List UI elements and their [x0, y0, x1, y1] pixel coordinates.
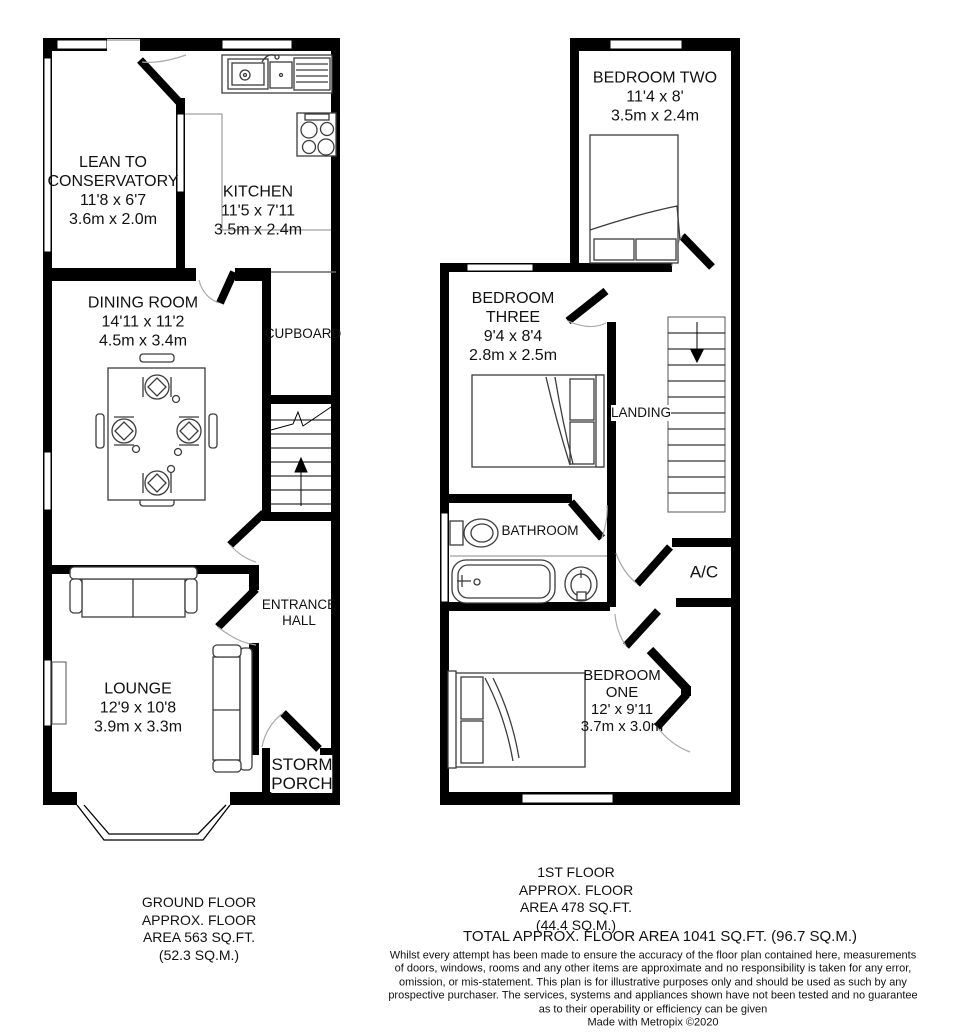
basin-icon: [565, 567, 597, 601]
disclaimer-text: Whilst every attempt has been made to en…: [373, 949, 933, 1016]
dining-table-icon: [96, 354, 217, 506]
ground-floor-caption: GROUND FLOOR APPROX. FLOOR AREA 563 SQ.F…: [142, 894, 256, 964]
stairs-up-icon: [271, 407, 331, 506]
kitchen-sink-icon: [222, 55, 332, 93]
door-icon: [615, 611, 658, 646]
floorplan-page: LEAN TO CONSERVATORY 11'8 x 6'7 3.6m x 2…: [0, 0, 980, 1036]
door-icon: [218, 589, 256, 645]
room-label-ac: A/C: [690, 563, 718, 582]
bed-icon: [590, 135, 680, 263]
stairs-down-icon: [668, 317, 725, 512]
door-icon: [616, 547, 670, 584]
room-label-kitchen: KITCHEN 11'5 x 7'11 3.5m x 2.4m: [214, 183, 302, 240]
bed-icon: [448, 671, 585, 768]
bed-icon: [472, 375, 604, 467]
room-label-lounge: LOUNGE 12'9 x 10'8 3.9m x 3.3m: [94, 680, 182, 737]
sofa-icon: [213, 645, 252, 772]
room-label-bedroom-two: BEDROOM TWO 11'4 x 8' 3.5m x 2.4m: [593, 69, 717, 126]
room-label-bedroom-three: BEDROOM THREE 9'4 x 8'4 2.8m x 2.5m: [469, 289, 557, 365]
door-icon: [140, 55, 186, 103]
room-label-bathroom: BATHROOM: [502, 523, 579, 539]
bay-window-icon: [77, 805, 230, 840]
room-label-landing: LANDING: [611, 405, 671, 421]
door-icon: [230, 513, 264, 562]
first-floor-caption: 1ST FLOOR APPROX. FLOOR AREA 478 SQ.FT. …: [519, 864, 633, 934]
sofa-icon: [70, 567, 197, 617]
room-label-entrance-hall: ENTRANCE HALL: [262, 597, 336, 629]
total-area-caption: TOTAL APPROX. FLOOR AREA 1041 SQ.FT. (96…: [463, 928, 857, 946]
room-label-bedroom-one: BEDROOM ONE 12' x 9'11 3.7m x 3.0m: [581, 667, 664, 735]
room-label-dining-room: DINING ROOM 14'11 x 11'2 4.5m x 3.4m: [88, 294, 198, 351]
hob-icon: [297, 113, 336, 156]
door-icon: [262, 713, 319, 749]
credit-text: Made with Metropix ©2020: [587, 1017, 718, 1030]
room-label-storm-porch: STORM PORCH: [271, 755, 332, 793]
toilet-icon: [450, 519, 498, 547]
room-label-conservatory: LEAN TO CONSERVATORY 11'8 x 6'7 3.6m x 2…: [48, 153, 179, 229]
door-icon: [568, 291, 606, 327]
room-label-cupboard: CUPBOARD: [265, 326, 342, 342]
